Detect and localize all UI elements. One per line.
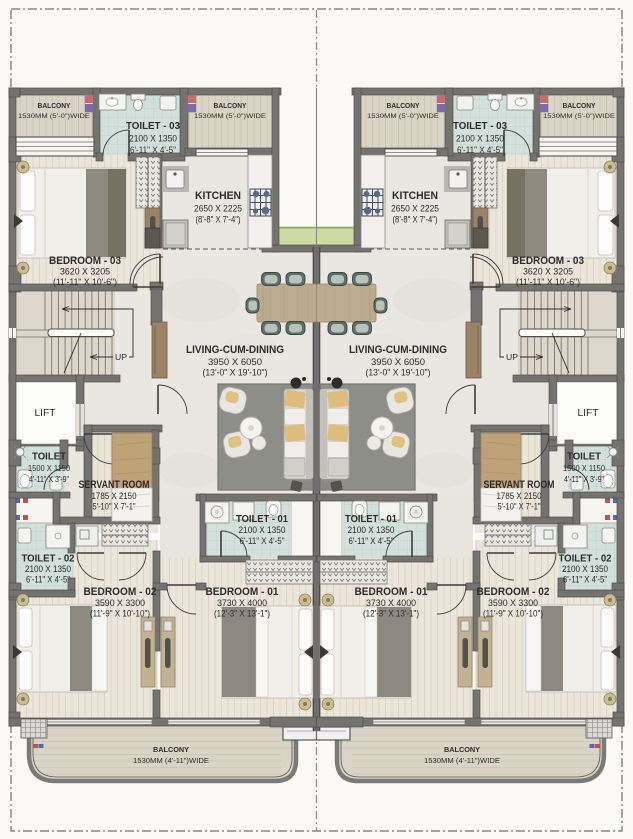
svg-text:1530MM (5'-0")WIDE: 1530MM (5'-0")WIDE: [18, 113, 91, 120]
svg-text:TOILET - 03: TOILET - 03: [126, 120, 180, 132]
svg-text:TOILET: TOILET: [567, 452, 601, 463]
svg-text:1530MM (5'-0")WIDE: 1530MM (5'-0")WIDE: [543, 113, 616, 120]
svg-text:KITCHEN: KITCHEN: [392, 190, 438, 202]
svg-text:TOILET - 03: TOILET - 03: [453, 120, 507, 132]
svg-text:1785 X 2150: 1785 X 2150: [92, 491, 137, 502]
svg-text:1530MM (4'-11")WIDE: 1530MM (4'-11")WIDE: [133, 758, 209, 765]
svg-text:BALCONY: BALCONY: [387, 103, 420, 110]
svg-text:3590 X 3300: 3590 X 3300: [488, 598, 538, 609]
svg-text:6'-11" X 4'-5": 6'-11" X 4'-5": [26, 575, 70, 585]
svg-text:(11'-9" X 10'-10"): (11'-9" X 10'-10"): [483, 609, 543, 620]
svg-text:SERVANT ROOM: SERVANT ROOM: [484, 479, 555, 491]
svg-text:2100 X 1350: 2100 X 1350: [456, 134, 504, 145]
svg-text:SERVANT ROOM: SERVANT ROOM: [79, 479, 150, 491]
svg-text:6'-11" X 4'-5": 6'-11" X 4'-5": [240, 536, 285, 547]
svg-text:3950 X 6050: 3950 X 6050: [208, 357, 262, 368]
svg-text:6'-11" X 4'-5": 6'-11" X 4'-5": [130, 145, 176, 156]
svg-text:(11'-9" X 10'-10"): (11'-9" X 10'-10"): [90, 609, 150, 620]
svg-text:6'-11" X 4'-5": 6'-11" X 4'-5": [349, 536, 394, 547]
svg-text:BEDROOM - 02: BEDROOM - 02: [84, 586, 157, 598]
svg-text:(12'-3" X 13'-1"): (12'-3" X 13'-1"): [363, 609, 419, 620]
svg-text:BALCONY: BALCONY: [153, 745, 189, 754]
svg-text:(12'-3" X 13'-1"): (12'-3" X 13'-1"): [214, 609, 270, 620]
svg-text:2100 X 1350: 2100 X 1350: [25, 564, 71, 574]
svg-text:TOILET - 02: TOILET - 02: [22, 554, 75, 565]
svg-text:2650 X 2225: 2650 X 2225: [391, 204, 439, 215]
svg-text:KITCHEN: KITCHEN: [195, 190, 241, 202]
svg-text:BEDROOM - 01: BEDROOM - 01: [206, 586, 279, 598]
svg-text:1500 X 1150: 1500 X 1150: [28, 463, 70, 473]
svg-text:3620 X 3205: 3620 X 3205: [60, 267, 110, 278]
svg-text:1530MM (5'-0")WIDE: 1530MM (5'-0")WIDE: [194, 113, 267, 120]
svg-text:TOILET - 01: TOILET - 01: [345, 513, 397, 525]
svg-text:(8'-8" X 7'-4"): (8'-8" X 7'-4"): [393, 215, 438, 226]
svg-text:BEDROOM - 01: BEDROOM - 01: [355, 586, 428, 598]
svg-text:3730 X 4000: 3730 X 4000: [366, 598, 416, 609]
svg-text:2650 X 2225: 2650 X 2225: [194, 204, 242, 215]
svg-text:6'-11" X 4'-5": 6'-11" X 4'-5": [457, 145, 503, 156]
svg-text:BEDROOM - 02: BEDROOM - 02: [477, 586, 550, 598]
svg-text:BALCONY: BALCONY: [563, 103, 596, 110]
svg-text:2100 X 1350: 2100 X 1350: [348, 525, 395, 536]
svg-text:(11'-11" X 10'-6"): (11'-11" X 10'-6"): [53, 277, 117, 288]
svg-text:BEDROOM - 03: BEDROOM - 03: [49, 255, 121, 267]
svg-text:1500 X 1150: 1500 X 1150: [563, 463, 605, 473]
svg-text:2100 X 1350: 2100 X 1350: [239, 525, 286, 536]
svg-text:BALCONY: BALCONY: [444, 745, 480, 754]
svg-text:BALCONY: BALCONY: [38, 103, 71, 110]
svg-text:UP: UP: [506, 353, 518, 362]
svg-text:BALCONY: BALCONY: [214, 103, 247, 110]
svg-text:1530MM (5'-0")WIDE: 1530MM (5'-0")WIDE: [367, 113, 440, 120]
svg-text:LIVING-CUM-DINING: LIVING-CUM-DINING: [186, 344, 284, 356]
svg-text:LIFT: LIFT: [578, 408, 599, 419]
svg-text:1785 X 2150: 1785 X 2150: [497, 491, 542, 502]
svg-text:TOILET: TOILET: [32, 452, 66, 463]
svg-text:TOILET - 01: TOILET - 01: [236, 513, 288, 525]
svg-text:2100 X 1350: 2100 X 1350: [129, 134, 177, 145]
svg-text:LIFT: LIFT: [35, 408, 56, 419]
svg-text:5'-10" X 7'-1": 5'-10" X 7'-1": [93, 502, 136, 513]
svg-text:UP: UP: [115, 353, 127, 362]
svg-text:(13'-0" X 19'-10"): (13'-0" X 19'-10"): [203, 368, 268, 379]
svg-text:3590 X 3300: 3590 X 3300: [95, 598, 145, 609]
svg-text:3730 X 4000: 3730 X 4000: [217, 598, 267, 609]
svg-text:3950 X 6050: 3950 X 6050: [371, 357, 425, 368]
svg-text:6'-11" X 4'-5": 6'-11" X 4'-5": [563, 575, 607, 585]
svg-text:2100 X 1350: 2100 X 1350: [562, 564, 608, 574]
svg-text:(11'-11" X 10'-6"): (11'-11" X 10'-6"): [516, 277, 580, 288]
svg-text:(8'-8" X 7'-4"): (8'-8" X 7'-4"): [196, 215, 241, 226]
svg-text:5'-10" X 7'-1": 5'-10" X 7'-1": [498, 502, 541, 513]
svg-text:(13'-0" X 19'-10"): (13'-0" X 19'-10"): [366, 368, 431, 379]
svg-text:3620 X 3205: 3620 X 3205: [523, 267, 573, 278]
svg-text:LIVING-CUM-DINING: LIVING-CUM-DINING: [349, 344, 447, 356]
svg-text:4'-11" X 3'-9": 4'-11" X 3'-9": [29, 474, 69, 484]
svg-text:4'-11" X 3'-9": 4'-11" X 3'-9": [564, 474, 604, 484]
svg-text:BEDROOM - 03: BEDROOM - 03: [512, 255, 584, 267]
svg-text:TOILET - 02: TOILET - 02: [559, 554, 612, 565]
svg-text:1530MM (4'-11")WIDE: 1530MM (4'-11")WIDE: [424, 758, 500, 765]
